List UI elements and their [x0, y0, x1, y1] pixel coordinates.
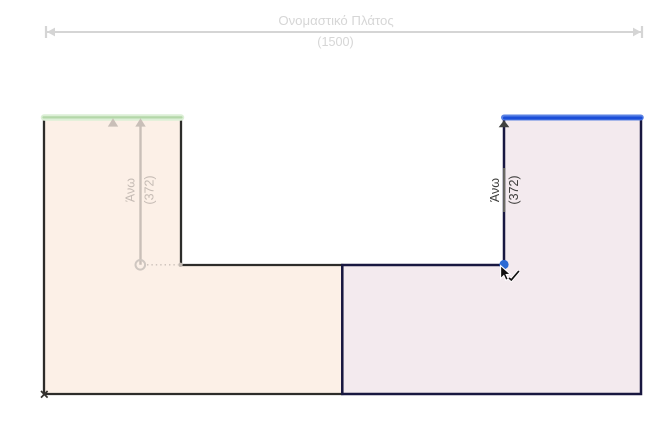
svg-text:(1500): (1500): [317, 35, 353, 49]
svg-text:(372): (372): [507, 175, 521, 204]
svg-text:(372): (372): [143, 175, 157, 204]
svg-text:Ονομαστικό Πλάτος: Ονομαστικό Πλάτος: [278, 13, 393, 28]
svg-text:Άνω: Άνω: [488, 178, 502, 202]
svg-text:Άνω: Άνω: [124, 178, 138, 202]
